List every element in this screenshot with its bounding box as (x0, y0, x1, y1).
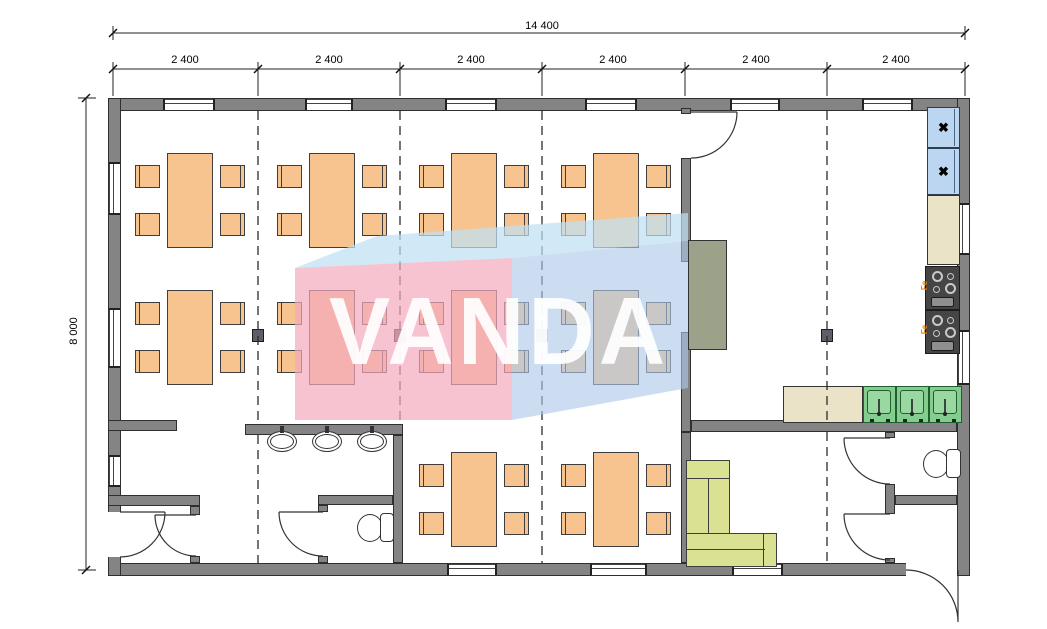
door-jamb (190, 506, 200, 515)
faucet-icon (280, 426, 284, 433)
chair (646, 512, 671, 535)
door-jamb (885, 558, 895, 563)
basin-inner (270, 434, 294, 449)
dimension-total-width: 14 400 (503, 20, 581, 32)
chair (504, 464, 529, 487)
sofa-cushion-line (708, 478, 709, 533)
chair (646, 350, 671, 373)
wall-bottom (108, 563, 970, 576)
chair (362, 213, 387, 236)
faucet-icon (370, 426, 374, 433)
dimension-bay: 2 400 (441, 54, 501, 66)
burner-icon (932, 271, 943, 282)
sink-basin (933, 390, 957, 414)
window (109, 162, 120, 215)
window (730, 99, 780, 110)
stove: Fe (925, 310, 960, 354)
chair (561, 350, 586, 373)
kitchen-sink (863, 386, 896, 423)
chair (362, 350, 387, 373)
chair (504, 302, 529, 325)
module-axis-marker (536, 329, 548, 342)
sink-foot (903, 419, 907, 422)
chair (419, 213, 444, 236)
chair (504, 512, 529, 535)
chair (561, 213, 586, 236)
window (590, 564, 647, 575)
chair (504, 213, 529, 236)
chair (277, 302, 302, 325)
dining-table (451, 452, 497, 547)
sink-foot (870, 419, 874, 422)
dining-table (309, 290, 355, 385)
wash-basin (267, 431, 297, 452)
dining-table (451, 153, 497, 248)
chair (277, 350, 302, 373)
chair (362, 165, 387, 188)
sink-foot (936, 419, 940, 422)
fridge: ✖ (927, 148, 960, 195)
chair (504, 350, 529, 373)
kitchen-sink (929, 386, 962, 423)
dining-table (167, 153, 213, 248)
sofa-armrest-line (763, 534, 764, 566)
oven-door (931, 341, 954, 351)
chair (419, 350, 444, 373)
kitchen-counter (927, 195, 960, 265)
dining-table (593, 452, 639, 547)
burner-icon (933, 286, 940, 293)
chair (561, 165, 586, 188)
dimension-bay: 2 400 (299, 54, 359, 66)
chair (220, 165, 245, 188)
door-jamb (885, 432, 895, 438)
dining-table (593, 153, 639, 248)
burner-icon (947, 273, 954, 280)
chair (277, 165, 302, 188)
burner-icon (932, 315, 943, 326)
wash-basin (312, 431, 342, 452)
chair (646, 213, 671, 236)
kitchen-sink (896, 386, 929, 423)
dimension-bay: 2 400 (155, 54, 215, 66)
chair (504, 165, 529, 188)
dimension-bay: 2 400 (583, 54, 643, 66)
sink-counter (783, 386, 863, 423)
oven-door (931, 297, 954, 307)
fridge-icon: ✖ (938, 164, 949, 180)
chair (419, 464, 444, 487)
door-jamb (190, 556, 200, 563)
stove-label: Fe (920, 325, 929, 334)
door-opening (906, 562, 957, 577)
wash-basin (357, 431, 387, 452)
wall-washroom-right (393, 435, 403, 563)
chair (220, 213, 245, 236)
toilet-tank (946, 449, 961, 478)
dimension-bay: 2 400 (866, 54, 926, 66)
chair (561, 464, 586, 487)
chair (135, 350, 160, 373)
chair (277, 213, 302, 236)
dining-table (167, 290, 213, 385)
dimension-total-height: 8 000 (68, 301, 80, 361)
door-opening (107, 512, 122, 557)
chair (220, 350, 245, 373)
chair (646, 302, 671, 325)
basin-inner (315, 434, 339, 449)
sink-foot (919, 419, 923, 422)
chair (419, 512, 444, 535)
module-axis-marker (394, 329, 406, 342)
window (109, 308, 120, 368)
burner-icon (947, 317, 954, 324)
chair (561, 512, 586, 535)
wall-entry-room (895, 495, 957, 505)
dining-table (309, 153, 355, 248)
door-jamb (318, 505, 328, 512)
chair (419, 302, 444, 325)
chair (135, 302, 160, 325)
sink-foot (952, 419, 956, 422)
chair (419, 165, 444, 188)
faucet-icon (325, 426, 329, 433)
chair (135, 165, 160, 188)
chair (646, 464, 671, 487)
dining-table (451, 290, 497, 385)
wall-vestibule (108, 495, 200, 506)
toilet-tank (380, 513, 394, 542)
dimension-bay: 2 400 (726, 54, 786, 66)
sink-basin (867, 390, 891, 414)
dining-table (593, 290, 639, 385)
burner-icon (945, 327, 956, 338)
door-jamb (681, 108, 691, 114)
sink-basin (900, 390, 924, 414)
window (447, 564, 497, 575)
burner-icon (945, 283, 956, 294)
window (862, 99, 913, 110)
window (445, 99, 497, 110)
wall-vestibule (108, 420, 177, 431)
fridge-icon: ✖ (938, 120, 949, 136)
basin-inner (360, 434, 384, 449)
sink-foot (886, 419, 890, 422)
sofa-seat (686, 533, 777, 567)
window (163, 99, 215, 110)
door-jamb (318, 556, 328, 563)
floor-plan-canvas: ✖ ✖ Fe Fe (0, 0, 1047, 629)
module-axis-marker (821, 329, 833, 342)
window (305, 99, 353, 110)
serving-counter (688, 240, 727, 350)
window (109, 455, 120, 487)
wall-entry-room (885, 484, 895, 514)
door-swing-icon (120, 112, 958, 622)
sofa-back (686, 460, 730, 534)
module-axis-marker (252, 329, 264, 342)
wall-wc (318, 495, 393, 505)
stove: Fe (925, 266, 960, 310)
chair (362, 302, 387, 325)
chair (561, 302, 586, 325)
chair (220, 302, 245, 325)
sofa-cushion-line (687, 549, 765, 550)
stove-label: Fe (920, 281, 929, 290)
chair (135, 213, 160, 236)
burner-icon (933, 330, 940, 337)
chair (646, 165, 671, 188)
wall-top (108, 98, 970, 111)
fridge: ✖ (927, 107, 960, 148)
window (585, 99, 637, 110)
